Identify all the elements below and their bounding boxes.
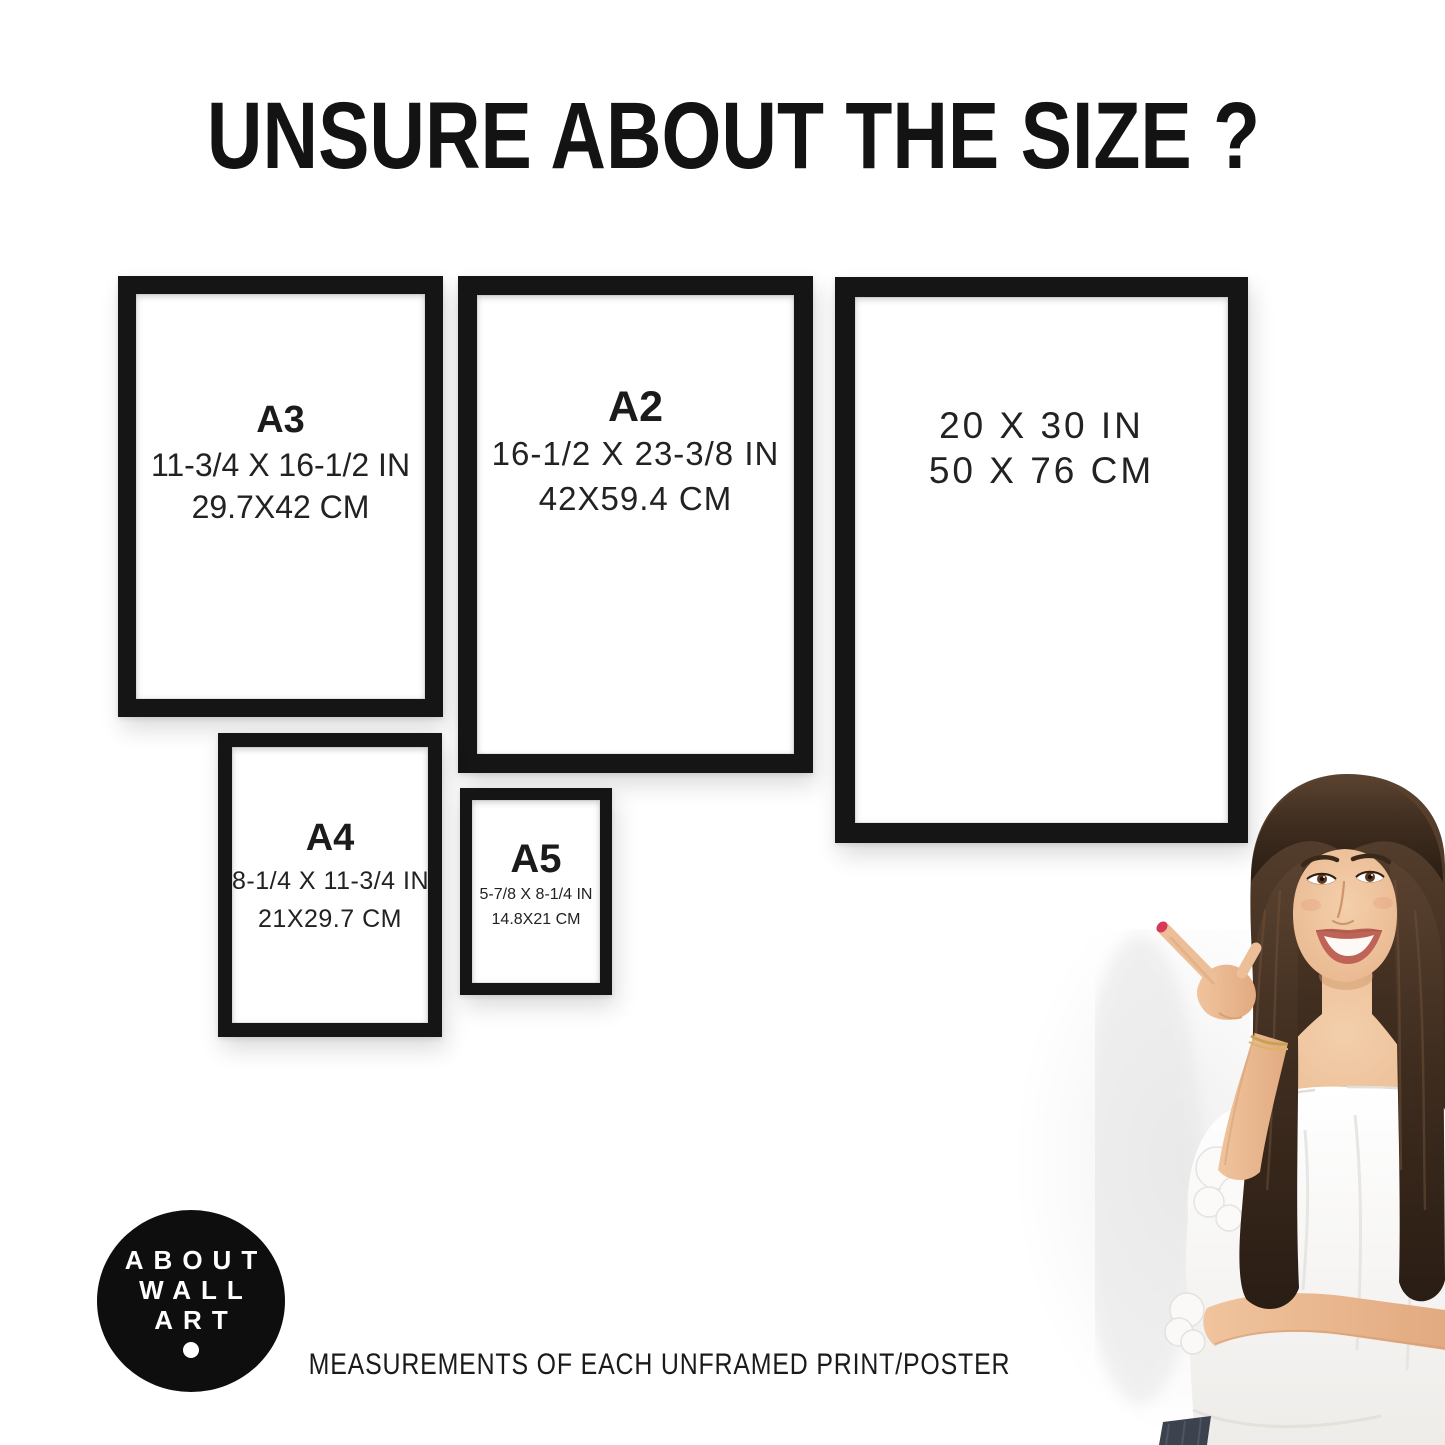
frame-size-cm: 21X29.7 CM [232,900,428,939]
woman-photo [1095,770,1445,1445]
frame-size-inches: 11-3/4 X 16-1/2 IN [136,444,425,487]
size-frame-a4: A4 8-1/4 X 11-3/4 IN 21X29.7 CM [218,733,442,1037]
logo-line-1: ABOUT [115,1245,267,1275]
frame-label: A5 [472,835,600,883]
frame-size-inches: 8-1/4 X 11-3/4 IN [232,862,428,901]
woman-jeans [1159,1416,1211,1445]
page-title: UNSURE ABOUT THE SIZE ? [148,82,1318,191]
frame-mat: A4 8-1/4 X 11-3/4 IN 21X29.7 CM [232,747,428,1023]
frame-size-cm: 29.7X42 CM [136,486,425,529]
frame-label: A4 [232,816,428,862]
frame-label: A3 [136,398,425,444]
frame-label: A2 [477,383,794,432]
frame-size-cm: 42X59.4 CM [477,477,794,522]
frame-size-inches: 5-7/8 X 8-1/4 IN [472,883,600,908]
logo-line-3: ART [144,1305,237,1335]
frame-mat: 20 X 30 IN 50 X 76 CM [855,297,1228,823]
frame-size-cm: 14.8X21 CM [472,908,600,933]
size-guide-graphic: UNSURE ABOUT THE SIZE ? A3 11-3/4 X 16-1… [0,0,1445,1445]
frame-size-cm: 50 X 76 CM [855,448,1228,493]
logo-line-2: WALL [129,1275,253,1305]
frame-mat: A3 11-3/4 X 16-1/2 IN 29.7X42 CM [136,294,425,699]
frame-mat: A2 16-1/2 X 23-3/8 IN 42X59.4 CM [477,295,794,754]
size-frame-20x30: 20 X 30 IN 50 X 76 CM [835,277,1248,843]
size-frame-a5: A5 5-7/8 X 8-1/4 IN 14.8X21 CM [460,788,612,995]
size-frame-a2: A2 16-1/2 X 23-3/8 IN 42X59.4 CM [458,276,813,773]
frame-mat: A5 5-7/8 X 8-1/4 IN 14.8X21 CM [472,800,600,983]
size-frame-a3: A3 11-3/4 X 16-1/2 IN 29.7X42 CM [118,276,443,717]
frame-size-inches: 20 X 30 IN [855,403,1228,448]
frame-size-inches: 16-1/2 X 23-3/8 IN [477,432,794,477]
